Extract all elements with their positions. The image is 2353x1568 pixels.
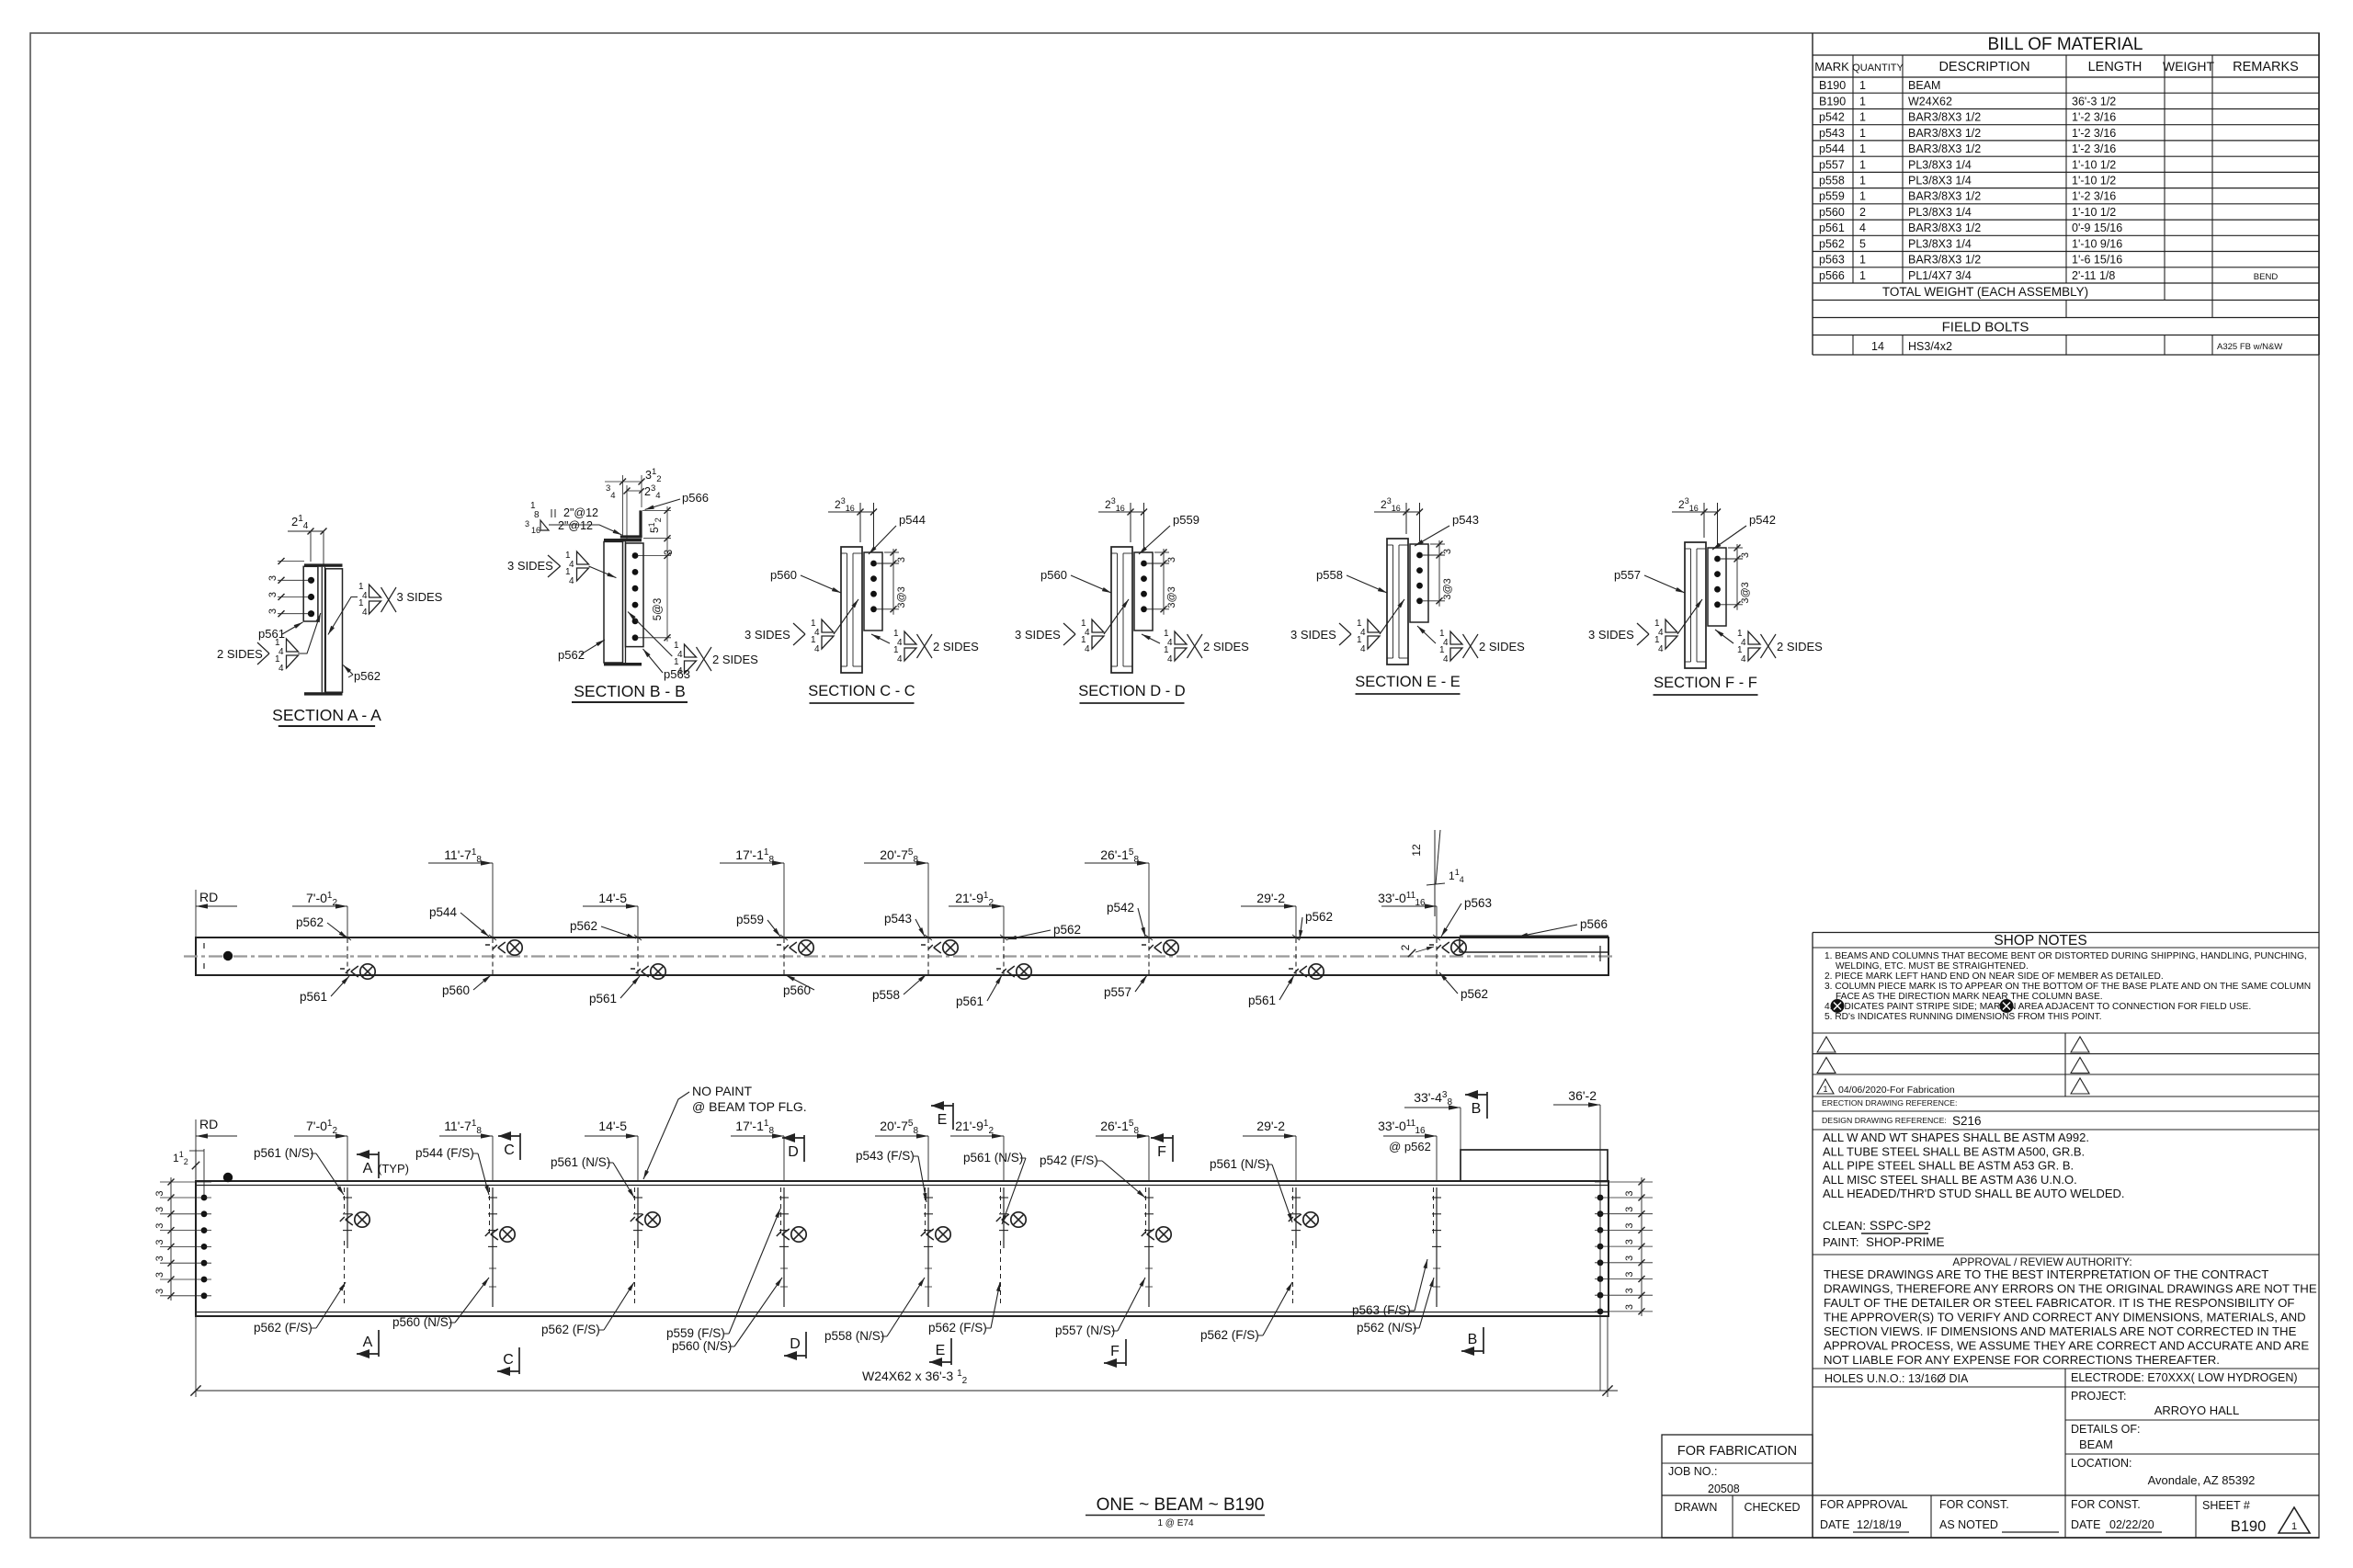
svg-text:p542 (F/S): p542 (F/S) — [1040, 1153, 1098, 1167]
svg-text:4: 4 — [278, 664, 284, 674]
svg-text:BEND: BEND — [2254, 272, 2279, 282]
svg-text:C: C — [504, 1142, 515, 1158]
svg-text:p557: p557 — [1614, 568, 1641, 582]
svg-text:ALL W AND WT SHAPES SHALL BE A: ALL W AND WT SHAPES SHALL BE ASTM A992. — [1823, 1131, 2089, 1144]
svg-text:BEAM: BEAM — [2079, 1437, 2113, 1451]
svg-text:p562: p562 — [296, 915, 324, 929]
svg-text:BEAM: BEAM — [1908, 79, 1940, 92]
svg-text:ELECTRODE: E70XXX( LOW HYDROG: ELECTRODE: E70XXX( LOW HYDROGEN) — [2071, 1371, 2298, 1384]
svg-text:4: 4 — [1360, 644, 1366, 654]
svg-text:FOR FABRICATION: FOR FABRICATION — [1677, 1444, 1797, 1459]
svg-text:p560: p560 — [442, 983, 470, 997]
svg-text:ARROYO HALL: ARROYO HALL — [2154, 1403, 2239, 1417]
svg-text:2 SIDES: 2 SIDES — [1479, 640, 1525, 653]
svg-text:p562: p562 — [1819, 237, 1845, 250]
svg-text:BAR3/8X3 1/2: BAR3/8X3 1/2 — [1908, 254, 1981, 267]
svg-text:04/06/2020-For Fabrication: 04/06/2020-For Fabrication — [1838, 1085, 1955, 1096]
svg-text:E: E — [938, 1112, 948, 1128]
svg-text:1'-10 1/2: 1'-10 1/2 — [2072, 158, 2116, 171]
svg-text:B190: B190 — [1819, 95, 1846, 108]
svg-text:3@3: 3@3 — [1442, 578, 1453, 599]
svg-text:APPROVAL / REVIEW AUTHORITY:: APPROVAL / REVIEW AUTHORITY: — [1952, 1256, 2131, 1268]
svg-text:SECTION D - D: SECTION D - D — [1078, 683, 1186, 699]
svg-text:3: 3 — [154, 1239, 165, 1244]
svg-text:14'-5: 14'-5 — [598, 891, 627, 905]
svg-text:(TYP): (TYP) — [378, 1162, 409, 1176]
svg-text:PROJECT:: PROJECT: — [2071, 1390, 2126, 1403]
svg-text:ONE ~ BEAM ~ B190: ONE ~ BEAM ~ B190 — [1097, 1495, 1265, 1515]
svg-text:D: D — [788, 1144, 799, 1160]
svg-text:p557: p557 — [1104, 985, 1131, 999]
svg-text:3: 3 — [154, 1223, 165, 1229]
svg-text:p561 (N/S): p561 (N/S) — [1210, 1157, 1269, 1171]
svg-text:p561: p561 — [300, 990, 327, 1004]
svg-text:p558: p558 — [872, 988, 900, 1002]
svg-text:3 SIDES: 3 SIDES — [397, 590, 443, 604]
svg-text:ERECTION DRAWING REFERENCE:: ERECTION DRAWING REFERENCE: — [1822, 1098, 1957, 1108]
svg-text:BAR3/8X3 1/2: BAR3/8X3 1/2 — [1908, 222, 1981, 234]
svg-text:3: 3 — [154, 1207, 165, 1212]
svg-text:p563: p563 — [1464, 896, 1492, 910]
svg-text:p558 (N/S): p558 (N/S) — [824, 1329, 884, 1343]
svg-text:2"@12: 2"@12 — [563, 506, 598, 519]
svg-text:ALL TUBE STEEL SHALL BE ASTM A: ALL TUBE STEEL SHALL BE ASTM A500, GR.B. — [1823, 1144, 2085, 1158]
svg-text:p562 (F/S): p562 (F/S) — [1200, 1328, 1259, 1342]
svg-text:2"@12: 2"@12 — [558, 519, 593, 532]
svg-text:MARK: MARK — [1814, 60, 1849, 74]
svg-text:p562 (F/S): p562 (F/S) — [928, 1321, 987, 1335]
svg-text:JOB NO.:: JOB NO.: — [1668, 1465, 1717, 1478]
svg-text:F: F — [1157, 1144, 1166, 1160]
svg-text:p542: p542 — [1819, 111, 1845, 124]
svg-text:p566: p566 — [682, 491, 709, 505]
svg-text:BAR3/8X3 1/2: BAR3/8X3 1/2 — [1908, 142, 1981, 155]
svg-text:p559 (F/S): p559 (F/S) — [666, 1326, 725, 1340]
svg-text:3: 3 — [154, 1289, 165, 1294]
svg-text:3: 3 — [1442, 549, 1453, 554]
svg-text:TOTAL WEIGHT (EACH ASSEMBLY): TOTAL WEIGHT (EACH ASSEMBLY) — [1882, 285, 2088, 299]
svg-text:p544: p544 — [429, 905, 458, 919]
svg-text:2 SIDES: 2 SIDES — [1203, 640, 1249, 653]
svg-text:RD: RD — [199, 1117, 218, 1131]
svg-text:1: 1 — [1859, 142, 1866, 155]
svg-text:3 SIDES: 3 SIDES — [1290, 628, 1336, 642]
svg-text:@ BEAM TOP FLG.: @ BEAM TOP FLG. — [692, 1099, 807, 1114]
svg-text:3@3: 3@3 — [896, 586, 907, 608]
svg-text:2 SIDES: 2 SIDES — [217, 647, 263, 661]
svg-text:1: 1 — [1859, 127, 1866, 140]
svg-text:F: F — [1110, 1344, 1120, 1359]
svg-text:4: 4 — [1658, 644, 1664, 654]
svg-text:DETAILS OF:: DETAILS OF: — [2071, 1423, 2140, 1436]
svg-text:p559: p559 — [1819, 190, 1845, 203]
svg-text:4: 4 — [362, 608, 368, 618]
svg-text:3: 3 — [896, 557, 907, 562]
svg-text:p558: p558 — [1819, 175, 1845, 187]
svg-text:2. PIECE MARK LEFT HAND END ON: 2. PIECE MARK LEFT HAND END ON NEAR SIDE… — [1824, 971, 2164, 982]
svg-text:p562: p562 — [570, 919, 597, 933]
svg-text:THE APPROVER(S) TO VERIFY AND: THE APPROVER(S) TO VERIFY AND CORRECT AN… — [1824, 1311, 2306, 1324]
svg-text:ALL HEADED/THR'D STUD SHALL BE: ALL HEADED/THR'D STUD SHALL BE AUTO WELD… — [1823, 1187, 2125, 1200]
svg-text:16: 16 — [531, 526, 540, 535]
svg-text:SECTION A - A: SECTION A - A — [272, 706, 381, 724]
svg-text:p558: p558 — [1316, 568, 1343, 582]
svg-text:8: 8 — [534, 510, 540, 520]
svg-text:p561: p561 — [1248, 994, 1276, 1007]
svg-text:4: 4 — [1085, 644, 1090, 654]
svg-text:4. INDICATES PAINT STRIPE: 4. INDICATES PAINT STRIPE SIDE; MARK N A… — [1824, 1002, 2251, 1012]
svg-text:p562 (F/S): p562 (F/S) — [541, 1323, 600, 1336]
svg-text:p559: p559 — [736, 913, 764, 926]
svg-text:SHOP NOTES: SHOP NOTES — [1994, 933, 2086, 949]
svg-text:C: C — [503, 1352, 514, 1368]
svg-text:p563: p563 — [1819, 254, 1845, 267]
svg-text:p542: p542 — [1749, 513, 1776, 527]
svg-text:A325 FB w/N&W: A325 FB w/N&W — [2217, 342, 2282, 352]
svg-text:3 SIDES: 3 SIDES — [1015, 628, 1061, 642]
svg-text:3@3: 3@3 — [1166, 586, 1177, 608]
svg-text:p544: p544 — [899, 513, 926, 527]
svg-text:WELDING, ETC. MUST BE STRAIGHT: WELDING, ETC. MUST BE STRAIGHTENED. — [1836, 961, 2029, 971]
svg-text:THESE DRAWINGS ARE TO THE BEST: THESE DRAWINGS ARE TO THE BEST INTERPRET… — [1824, 1267, 2268, 1281]
svg-text:2 SIDES: 2 SIDES — [712, 653, 758, 666]
svg-text:PL3/8X3 1/4: PL3/8X3 1/4 — [1908, 206, 1972, 219]
svg-text:5. RD's INDICATES RUNNING DIME: 5. RD's INDICATES RUNNING DIMENSIONS FRO… — [1824, 1012, 2102, 1022]
svg-text:FAULT OF THE DETAILER OR STEEL: FAULT OF THE DETAILER OR STEEL FABRICATO… — [1824, 1296, 2294, 1310]
svg-text:p557: p557 — [1819, 158, 1845, 171]
svg-text:3: 3 — [525, 519, 529, 528]
svg-text:2: 2 — [1859, 206, 1866, 219]
svg-text:3: 3 — [267, 608, 278, 614]
svg-text:20508: 20508 — [1708, 1483, 1740, 1495]
svg-text:B190: B190 — [1819, 79, 1846, 92]
svg-text:3@3: 3@3 — [1740, 582, 1751, 603]
svg-text:DATE: DATE — [2071, 1518, 2100, 1531]
svg-text:12: 12 — [1410, 844, 1423, 857]
svg-text:3: 3 — [154, 1190, 165, 1196]
svg-text:4: 4 — [897, 654, 903, 665]
svg-text:p543 (F/S): p543 (F/S) — [856, 1149, 915, 1163]
svg-text:4: 4 — [1741, 654, 1746, 665]
svg-text:B190: B190 — [2231, 1518, 2267, 1535]
svg-text:B: B — [1472, 1101, 1482, 1117]
svg-text:FOR CONST.: FOR CONST. — [2071, 1498, 2141, 1511]
svg-text:p562: p562 — [354, 669, 381, 683]
svg-text:3: 3 — [1740, 552, 1751, 558]
svg-text:1: 1 — [1859, 190, 1866, 203]
svg-text:3: 3 — [267, 592, 278, 597]
svg-text:3 SIDES: 3 SIDES — [1588, 628, 1634, 642]
svg-text:p560 (N/S): p560 (N/S) — [392, 1315, 452, 1329]
svg-text:p563: p563 — [664, 667, 690, 681]
svg-text:3: 3 — [664, 550, 675, 555]
svg-text:1: 1 — [1859, 95, 1866, 108]
svg-text:p544 (F/S): p544 (F/S) — [415, 1146, 474, 1160]
svg-text:NOT LIABLE FOR ANY EXPENSE FOR: NOT LIABLE FOR ANY EXPENSE FOR CORRECTIO… — [1824, 1353, 2220, 1367]
svg-text:SHEET #: SHEET # — [2202, 1499, 2250, 1512]
svg-text:1: 1 — [1859, 175, 1866, 187]
svg-text:3 SIDES: 3 SIDES — [745, 628, 790, 642]
svg-text:3: 3 — [1624, 1288, 1635, 1293]
svg-text:1: 1 — [1823, 1085, 1827, 1094]
svg-text:DESIGN DRAWING REFERENCE:: DESIGN DRAWING REFERENCE: — [1822, 1116, 1947, 1125]
svg-text:SECTION E - E: SECTION E - E — [1355, 674, 1461, 690]
svg-text:FACE AS THE DIRECTION MARK NEA: FACE AS THE DIRECTION MARK NEAR THE COLU… — [1836, 992, 2103, 1002]
svg-text:1: 1 — [2291, 1521, 2297, 1532]
svg-text:2: 2 — [1399, 944, 1412, 950]
svg-text:4: 4 — [569, 576, 574, 586]
svg-text:1'-10 1/2: 1'-10 1/2 — [2072, 175, 2116, 187]
svg-text:p562 (N/S): p562 (N/S) — [1357, 1321, 1416, 1335]
svg-text:E: E — [936, 1343, 946, 1358]
svg-text:2'-11 1/8: 2'-11 1/8 — [2072, 269, 2115, 282]
svg-text:29'-2: 29'-2 — [1256, 891, 1285, 905]
svg-text:p566: p566 — [1819, 269, 1845, 282]
svg-text:1: 1 — [1859, 111, 1866, 124]
svg-text:3: 3 — [1624, 1239, 1635, 1244]
svg-text:FIELD BOLTS: FIELD BOLTS — [1942, 320, 2029, 335]
svg-text:SECTION F - F: SECTION F - F — [1654, 675, 1757, 691]
svg-text:p559: p559 — [1173, 513, 1199, 527]
svg-text:QUANTITY: QUANTITY — [1852, 62, 1904, 74]
svg-text:CLEAN:: CLEAN: — [1823, 1219, 1866, 1233]
svg-text:BAR3/8X3 1/2: BAR3/8X3 1/2 — [1908, 127, 1981, 140]
svg-text:p562: p562 — [558, 648, 585, 662]
svg-text:D: D — [790, 1336, 801, 1352]
svg-text:HS3/4x2: HS3/4x2 — [1908, 340, 1952, 353]
svg-text:p543: p543 — [884, 912, 912, 926]
svg-text:1'-2 3/16: 1'-2 3/16 — [2072, 127, 2116, 140]
svg-text:Avondale, AZ 85392: Avondale, AZ 85392 — [2148, 1473, 2256, 1487]
svg-text:PL3/8X3 1/4: PL3/8X3 1/4 — [1908, 158, 1972, 171]
svg-text:36'-2: 36'-2 — [1568, 1088, 1597, 1103]
svg-text:1: 1 — [1859, 158, 1866, 171]
svg-text:3. COLUMN PIECE MARK IS TO APP: 3. COLUMN PIECE MARK IS TO APPEAR ON THE… — [1824, 982, 2311, 992]
svg-text:HOLES U.N.O.: 13/16Ø DIA: HOLES U.N.O.: 13/16Ø DIA — [1824, 1372, 1969, 1385]
svg-text:3: 3 — [154, 1272, 165, 1278]
svg-text:REMARKS: REMARKS — [2233, 60, 2299, 74]
svg-text:S216: S216 — [1952, 1114, 1982, 1128]
svg-text:5@3: 5@3 — [653, 598, 664, 620]
svg-text:36'-3 1/2: 36'-3 1/2 — [2072, 95, 2116, 108]
svg-text:1: 1 — [1859, 79, 1866, 92]
svg-text:4: 4 — [1443, 654, 1449, 665]
svg-text:p562 (F/S): p562 (F/S) — [254, 1321, 313, 1335]
svg-text:p566: p566 — [1580, 917, 1608, 931]
svg-text:APPROVAL PROCESS, WE ASSUME TH: APPROVAL PROCESS, WE ASSUME THEY ARE COR… — [1824, 1339, 2309, 1353]
svg-text:p561: p561 — [1819, 222, 1845, 234]
svg-text:1. BEAMS AND COLUMNS THAT BECO: 1. BEAMS AND COLUMNS THAT BECOME BENT OR… — [1824, 951, 2307, 961]
svg-text:p560: p560 — [770, 568, 797, 582]
svg-text:SSPC-SP2: SSPC-SP2 — [1870, 1219, 1931, 1233]
svg-text:A: A — [363, 1161, 373, 1176]
svg-text:CHECKED: CHECKED — [1744, 1501, 1800, 1514]
svg-text:WEIGHT: WEIGHT — [2163, 59, 2214, 74]
svg-text:4: 4 — [1167, 654, 1173, 665]
svg-text:p562: p562 — [1461, 987, 1488, 1001]
svg-text:p560: p560 — [1819, 206, 1845, 219]
svg-text:LOCATION:: LOCATION: — [2071, 1457, 2131, 1470]
svg-text:1'-10 1/2: 1'-10 1/2 — [2072, 206, 2116, 219]
svg-text:02/22/20: 02/22/20 — [2109, 1518, 2154, 1531]
svg-text:3: 3 — [1624, 1256, 1635, 1261]
svg-text:p543: p543 — [1452, 513, 1479, 527]
svg-text:5: 5 — [1859, 237, 1866, 250]
svg-text:3: 3 — [1624, 1304, 1635, 1310]
svg-text:AS NOTED: AS NOTED — [1939, 1518, 1998, 1531]
svg-text:B: B — [1468, 1332, 1478, 1347]
svg-text:DESCRIPTION: DESCRIPTION — [1938, 60, 2029, 74]
svg-text:1: 1 — [1859, 269, 1866, 282]
svg-text:BILL OF MATERIAL: BILL OF MATERIAL — [1988, 35, 2143, 54]
svg-text:3: 3 — [154, 1256, 165, 1261]
svg-text:p561 (N/S): p561 (N/S) — [551, 1155, 610, 1169]
svg-text:BAR3/8X3 1/2: BAR3/8X3 1/2 — [1908, 111, 1981, 124]
svg-text:p561: p561 — [589, 992, 617, 1006]
svg-text:3: 3 — [1624, 1207, 1635, 1212]
svg-text:DRAWN: DRAWN — [1675, 1501, 1718, 1514]
svg-text:14'-5: 14'-5 — [598, 1119, 627, 1133]
svg-text:SECTION B - B: SECTION B - B — [574, 682, 686, 700]
svg-text:SECTION VIEWS. IF DIMENSIONS: SECTION VIEWS. IF DIMENSIONS AND MATERIA… — [1824, 1324, 2297, 1338]
svg-text:@ p562: @ p562 — [1389, 1140, 1431, 1153]
svg-text:DRAWINGS, THEREFORE ANY ERRORS: DRAWINGS, THEREFORE ANY ERRORS ON THE OR… — [1824, 1282, 2317, 1296]
svg-text:SHOP-PRIME: SHOP-PRIME — [1866, 1235, 1945, 1249]
svg-text:W24X62: W24X62 — [1908, 95, 1952, 108]
svg-text:3: 3 — [1166, 557, 1177, 562]
svg-text:29'-2: 29'-2 — [1256, 1119, 1285, 1133]
svg-text:3: 3 — [1624, 1222, 1635, 1228]
svg-text:PL3/8X3 1/4: PL3/8X3 1/4 — [1908, 175, 1972, 187]
svg-text:1'-6 15/16: 1'-6 15/16 — [2072, 254, 2122, 267]
svg-text:4: 4 — [1859, 222, 1866, 234]
svg-text:3 SIDES: 3 SIDES — [507, 559, 553, 573]
svg-text:p561: p561 — [956, 994, 983, 1008]
svg-text:4: 4 — [814, 644, 820, 654]
svg-text:p562: p562 — [1305, 910, 1333, 924]
svg-text:p560 (N/S): p560 (N/S) — [672, 1339, 732, 1353]
svg-text:ALL PIPE STEEL SHALL BE ASTM A: ALL PIPE STEEL SHALL BE ASTM A53 GR. B. — [1823, 1159, 2074, 1173]
svg-text:1'-2 3/16: 1'-2 3/16 — [2072, 142, 2116, 155]
svg-text:LENGTH: LENGTH — [2088, 60, 2143, 74]
svg-text:1: 1 — [1859, 254, 1866, 267]
svg-text:2 SIDES: 2 SIDES — [933, 640, 979, 653]
svg-text:3: 3 — [267, 575, 278, 581]
svg-text:1'-2 3/16: 1'-2 3/16 — [2072, 190, 2116, 203]
svg-text:p561 (N/S): p561 (N/S) — [254, 1146, 313, 1160]
svg-text:BAR3/8X3 1/2: BAR3/8X3 1/2 — [1908, 190, 1981, 203]
svg-text:p560: p560 — [1040, 568, 1067, 582]
svg-text:p563 (F/S): p563 (F/S) — [1352, 1303, 1411, 1317]
svg-text:p561 (N/S): p561 (N/S) — [963, 1151, 1023, 1165]
svg-text:p561: p561 — [258, 627, 285, 641]
svg-text:NO PAINT: NO PAINT — [692, 1084, 753, 1098]
svg-text:2 SIDES: 2 SIDES — [1777, 640, 1823, 653]
svg-text:1'-10 9/16: 1'-10 9/16 — [2072, 237, 2122, 250]
svg-text:3: 3 — [1624, 1190, 1635, 1196]
svg-text:p542: p542 — [1107, 901, 1134, 915]
svg-text:SECTION C - C: SECTION C - C — [808, 683, 915, 699]
svg-text:p562: p562 — [1053, 923, 1081, 937]
svg-text:FOR CONST.: FOR CONST. — [1939, 1498, 2009, 1511]
svg-text:3: 3 — [1624, 1272, 1635, 1278]
svg-text:ALL MISC STEEL SHALL BE ASTM A: ALL MISC STEEL SHALL BE ASTM A36 U.N.O. — [1823, 1173, 2077, 1187]
svg-text:PAINT:: PAINT: — [1823, 1235, 1859, 1249]
svg-text:12/18/19: 12/18/19 — [1857, 1518, 1902, 1531]
svg-text:1'-2 3/16: 1'-2 3/16 — [2072, 111, 2116, 124]
svg-text:DATE: DATE — [1820, 1518, 1849, 1531]
svg-text:FOR APPROVAL: FOR APPROVAL — [1820, 1498, 1908, 1511]
svg-text:A: A — [363, 1335, 373, 1350]
svg-text:14: 14 — [1871, 340, 1884, 353]
svg-text:PL3/8X3 1/4: PL3/8X3 1/4 — [1908, 237, 1972, 250]
svg-text:RD: RD — [199, 890, 218, 904]
svg-text:1 @ E74: 1 @ E74 — [1157, 1518, 1194, 1528]
svg-text:PL1/4X7 3/4: PL1/4X7 3/4 — [1908, 269, 1972, 282]
svg-text:0'-9 15/16: 0'-9 15/16 — [2072, 222, 2122, 234]
svg-text:p543: p543 — [1819, 127, 1845, 140]
svg-text:p557 (N/S): p557 (N/S) — [1055, 1324, 1115, 1337]
svg-text:p544: p544 — [1819, 142, 1845, 155]
